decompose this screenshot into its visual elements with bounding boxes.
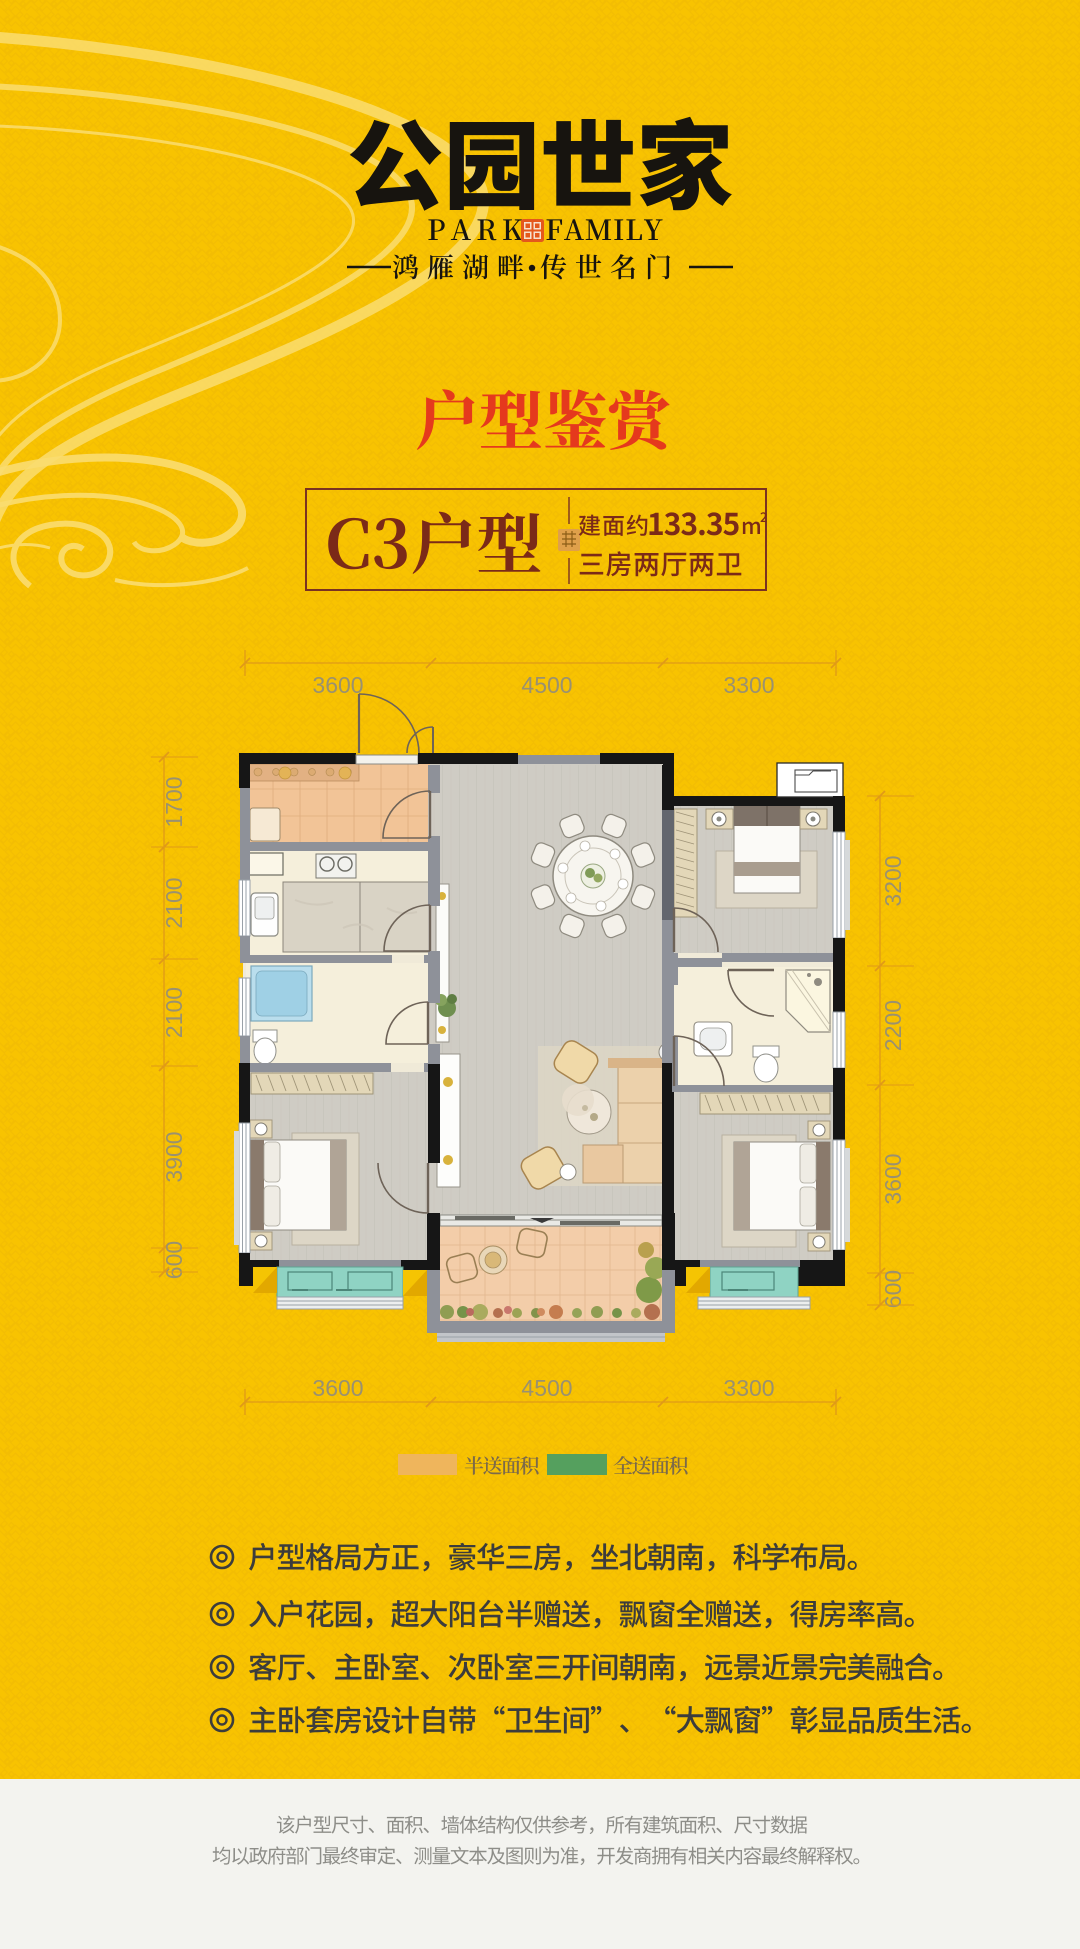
svg-text:4500: 4500 [521, 1375, 572, 1401]
svg-text:3600: 3600 [312, 1375, 363, 1401]
svg-text:3600: 3600 [880, 1153, 906, 1204]
svg-text:3600: 3600 [312, 672, 363, 698]
svg-text:2200: 2200 [880, 1000, 906, 1051]
svg-text:3300: 3300 [723, 672, 774, 698]
svg-text:1700: 1700 [161, 776, 187, 827]
svg-text:3300: 3300 [723, 1375, 774, 1401]
svg-text:600: 600 [161, 1241, 187, 1279]
svg-text:3200: 3200 [880, 855, 906, 906]
svg-text:2100: 2100 [161, 877, 187, 928]
svg-text:600: 600 [880, 1270, 906, 1308]
svg-text:3900: 3900 [161, 1131, 187, 1182]
svg-text:2100: 2100 [161, 987, 187, 1038]
svg-text:4500: 4500 [521, 672, 572, 698]
